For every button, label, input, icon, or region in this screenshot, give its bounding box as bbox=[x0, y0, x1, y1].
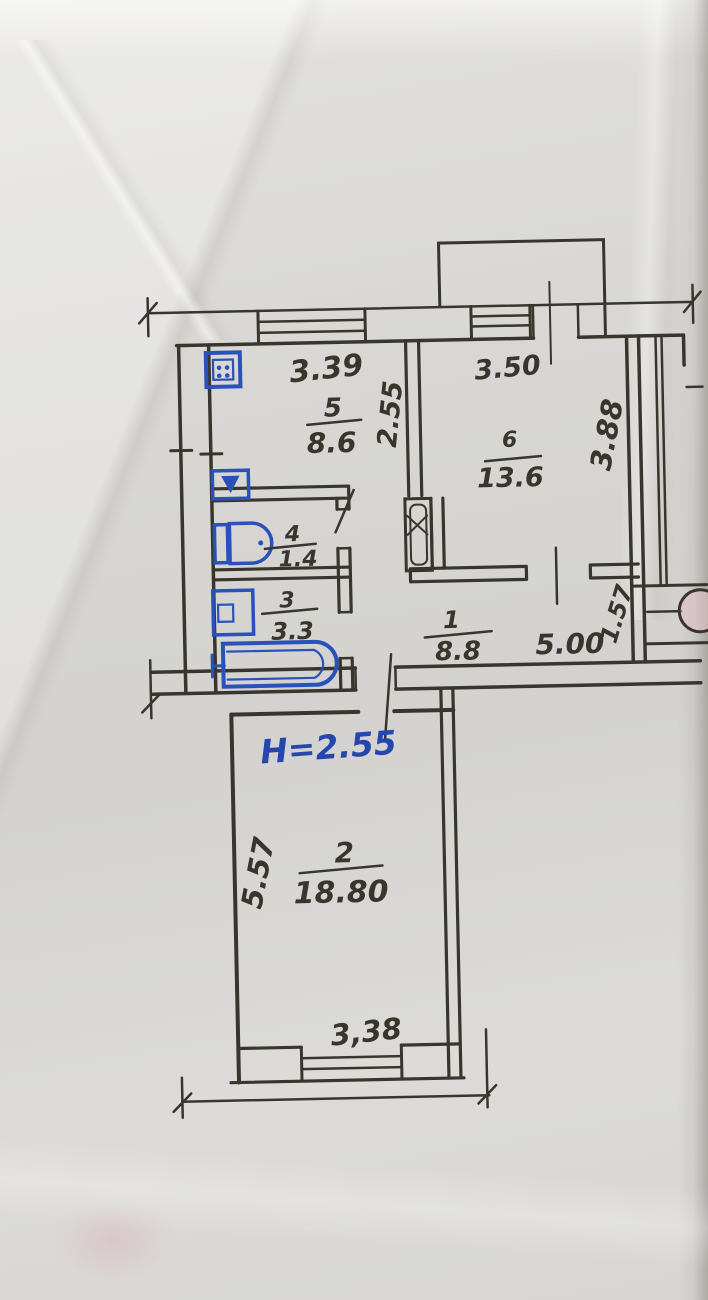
vestibule-top bbox=[632, 585, 707, 587]
mid-bottom-wall bbox=[152, 661, 700, 694]
vestibule-bottom bbox=[645, 643, 708, 644]
balcony-door-jambs bbox=[533, 304, 579, 338]
vestibule-line bbox=[647, 611, 681, 612]
dim-extension bbox=[549, 282, 551, 364]
room-3-number: 3 bbox=[279, 588, 295, 613]
dim-extension bbox=[556, 548, 557, 604]
bottom-dimension-line bbox=[182, 1095, 489, 1101]
room-1-area: 8.8 bbox=[435, 636, 482, 667]
room6-bottom-wall bbox=[410, 564, 638, 582]
kitchen-room6-wall bbox=[406, 341, 422, 496]
room-2-number: 2 bbox=[334, 836, 354, 869]
room-5-number: 5 bbox=[324, 393, 343, 423]
dim-tick bbox=[141, 660, 160, 718]
closet-inner bbox=[410, 504, 427, 564]
room-2-area: 18.80 bbox=[293, 874, 389, 911]
floor-plan-photo: 3.39 5 8.6 2.55 3.50 6 13.6 3.88 4 1.4 3… bbox=[0, 0, 708, 1300]
doors bbox=[335, 489, 393, 742]
dim-tick bbox=[139, 298, 158, 336]
interior-walls bbox=[209, 336, 649, 1083]
dim-tick bbox=[173, 1078, 192, 1118]
room6-width-dim: 3.50 bbox=[473, 350, 542, 387]
hall-width-dim: 5.00 bbox=[535, 627, 605, 661]
kitchen-window bbox=[258, 309, 366, 344]
ceiling-height-note: H=2.55 bbox=[259, 723, 398, 772]
kitchen-depth-dim: 2.55 bbox=[372, 379, 410, 448]
living-room-top-wall bbox=[231, 710, 453, 715]
kitchen-door-swing bbox=[335, 490, 355, 532]
room-4-area: 1.4 bbox=[278, 547, 317, 573]
stair-wall bbox=[655, 335, 666, 585]
closet bbox=[405, 498, 433, 571]
left-wall-inner bbox=[209, 345, 216, 691]
kitchen-width-dim: 3.39 bbox=[288, 348, 365, 391]
room6-depth-dim: 3.88 bbox=[583, 396, 630, 473]
room-1-number: 1 bbox=[443, 606, 460, 634]
room-4-number: 4 bbox=[284, 522, 301, 547]
room-6-underline bbox=[485, 456, 541, 461]
dim-tick bbox=[683, 285, 701, 323]
labels: 3.39 5 8.6 2.55 3.50 6 13.6 3.88 4 1.4 3… bbox=[223, 342, 648, 1055]
bathtub-icon bbox=[212, 641, 337, 687]
washbasin-icon bbox=[213, 590, 254, 635]
plan: 3.39 5 8.6 2.55 3.50 6 13.6 3.88 4 1.4 3… bbox=[133, 237, 708, 1118]
room-6-area: 13.6 bbox=[477, 462, 544, 494]
living-depth-dim: 5.57 bbox=[234, 834, 281, 911]
living-room-outer-edge bbox=[231, 1078, 464, 1083]
top-dimension-line bbox=[148, 302, 693, 313]
stamp-circle bbox=[679, 589, 708, 632]
room-5-area: 8.6 bbox=[307, 426, 357, 460]
kitchen-sink-icon bbox=[212, 470, 249, 499]
living-room-right-wall bbox=[441, 688, 461, 1076]
room6-window bbox=[471, 305, 531, 339]
floor-plan-drawing: 3.39 5 8.6 2.55 3.50 6 13.6 3.88 4 1.4 3… bbox=[0, 0, 708, 1300]
room-6-number: 6 bbox=[502, 428, 518, 453]
living-width-dim: 3,38 bbox=[329, 1011, 404, 1053]
left-wall-outer bbox=[179, 346, 186, 692]
wall-joint-marks bbox=[171, 450, 222, 455]
toilet-icon bbox=[214, 523, 272, 564]
corner-stub bbox=[683, 335, 684, 365]
room-3-area: 3.3 bbox=[271, 617, 314, 646]
